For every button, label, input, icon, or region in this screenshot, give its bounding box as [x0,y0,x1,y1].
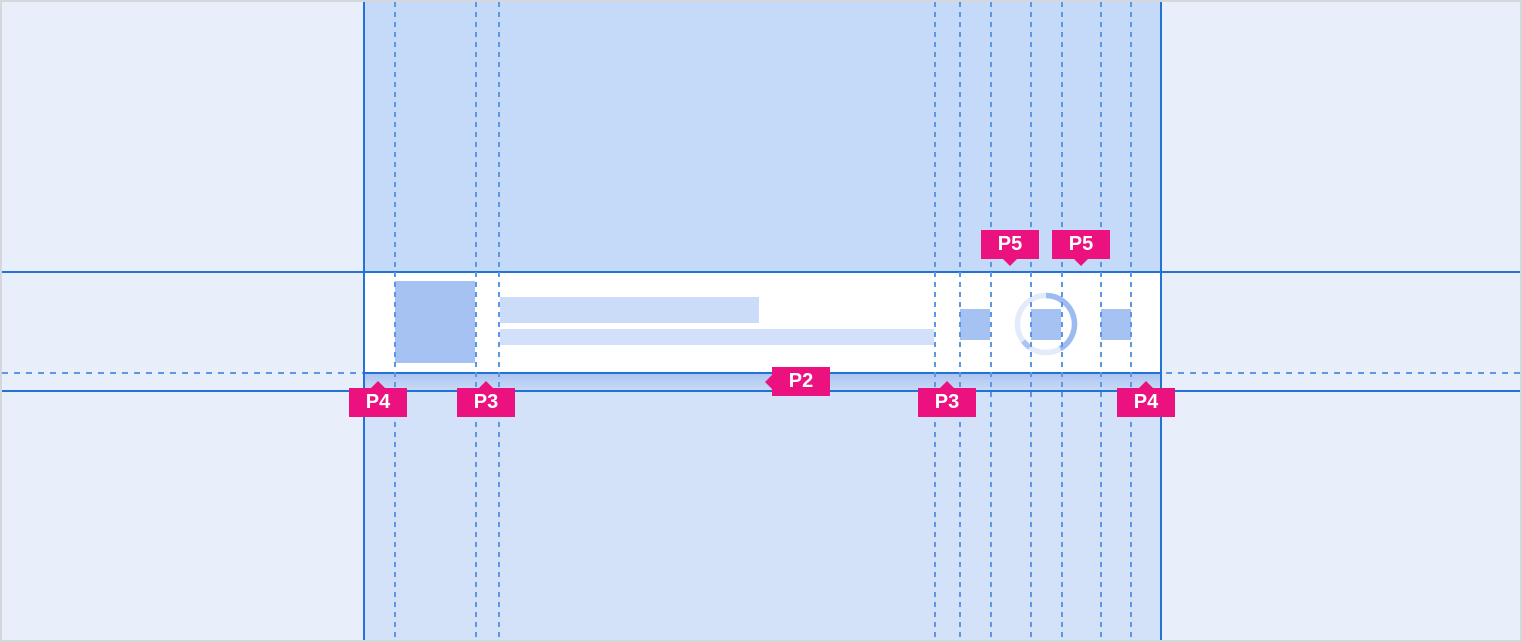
padding-label-p4-right: P4 [1117,388,1175,417]
guide-dashed-action2-left [1030,2,1032,640]
guide-dashed-action1-right [990,2,992,640]
column-area-below-row [365,392,1160,642]
column-area-above-row [365,2,1160,273]
spacing-spec-canvas: P5 P5 P2 P4 P3 P3 P4 [0,0,1522,642]
action-icon-placeholder-3 [1101,309,1131,340]
padding-label-p3-left: P3 [457,388,515,417]
guide-line-row-bottom [363,372,1162,374]
subtitle-line-placeholder [500,329,934,345]
guide-dashed-avatar-right [475,2,477,640]
guide-dashed-text-left [498,2,500,640]
guide-line-row-top [2,271,1522,273]
guide-dashed-action3-left [1100,2,1102,640]
guide-dashed-action2-right [1061,2,1063,640]
guide-dashed-avatar-left [394,2,396,640]
loading-spinner-icon [1014,292,1078,356]
guide-dashed-action3-right [1130,2,1132,640]
guide-dashed-action1-left [959,2,961,640]
padding-label-p5-action-gap-1: P5 [981,230,1039,259]
padding-label-p4-left: P4 [349,388,407,417]
title-line-placeholder [500,297,759,323]
padding-label-p3-right: P3 [918,388,976,417]
action-icon-placeholder-1 [960,309,990,340]
guide-line-band-bottom [2,390,1522,392]
padding-label-p5-action-gap-2: P5 [1052,230,1110,259]
avatar-placeholder [395,281,475,363]
guide-dashed-text-right [934,2,936,640]
padding-label-p2-vertical: P2 [772,367,830,396]
